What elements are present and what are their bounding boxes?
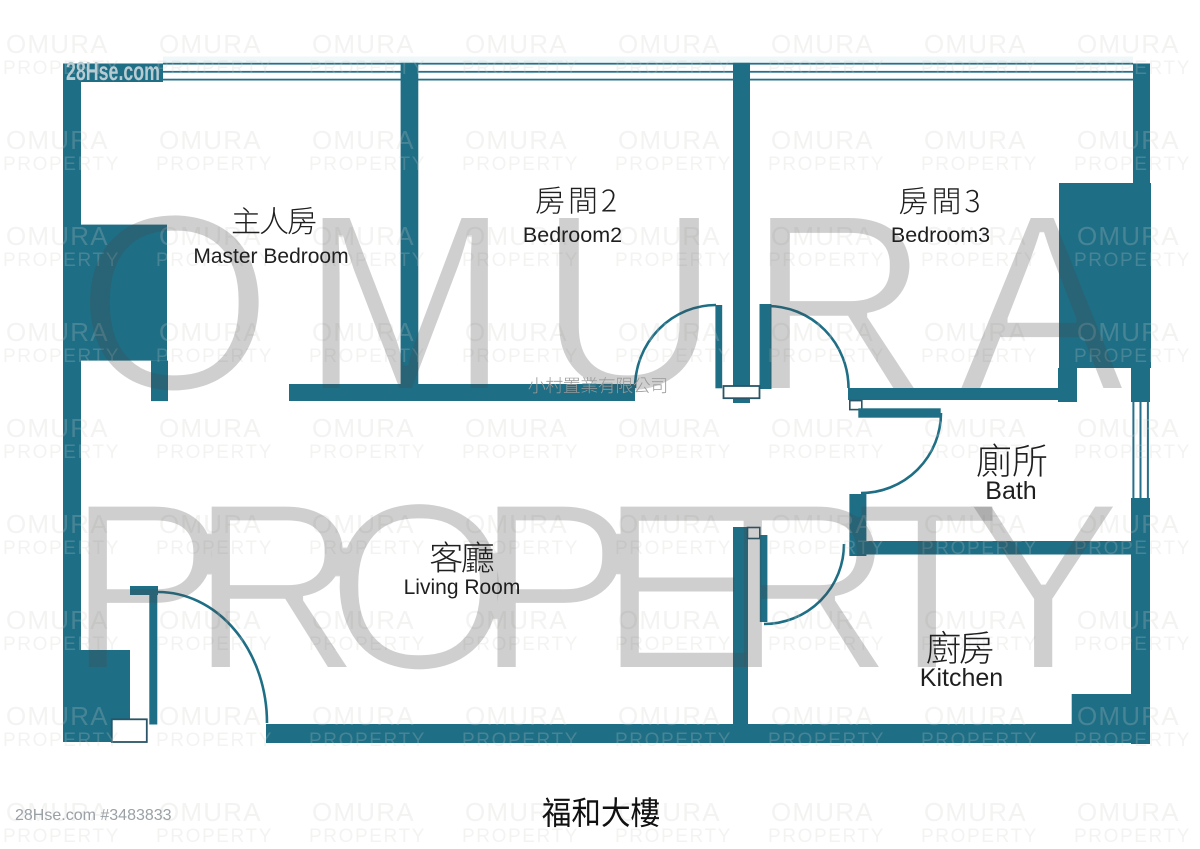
- svg-text:Bedroom2: Bedroom2: [523, 223, 622, 247]
- svg-text:OMURA: OMURA: [76, 161, 1126, 444]
- svg-text:Master Bedroom: Master Bedroom: [193, 245, 348, 268]
- svg-text:Bedroom3: Bedroom3: [891, 223, 990, 247]
- svg-text:Kitchen: Kitchen: [920, 664, 1003, 692]
- svg-text:28Hse.com: 28Hse.com: [66, 56, 160, 86]
- svg-text:28Hse.com #3483833: 28Hse.com #3483833: [15, 807, 172, 824]
- svg-text:Living Room: Living Room: [404, 576, 521, 599]
- svg-text:Bath: Bath: [985, 477, 1036, 505]
